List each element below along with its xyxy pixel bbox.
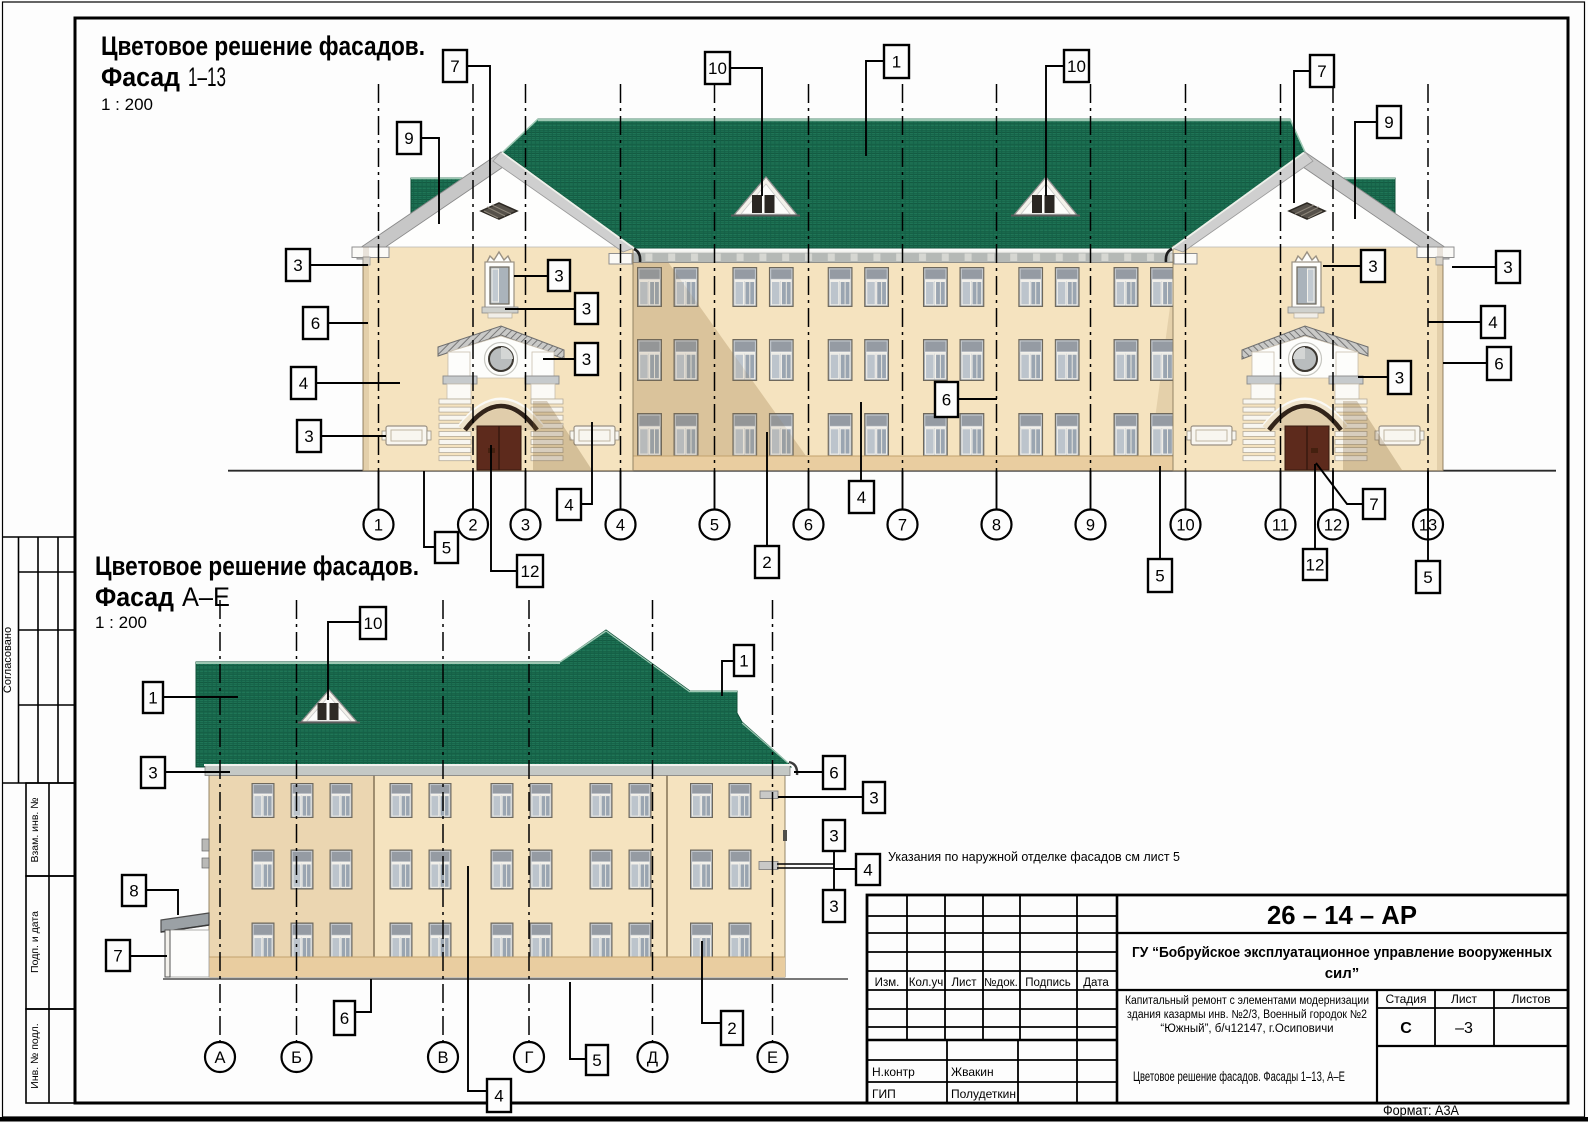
svg-text:5: 5 (442, 539, 451, 558)
svg-text:12: 12 (1324, 517, 1342, 535)
svg-text:3: 3 (554, 267, 563, 286)
svg-text:Д: Д (647, 1049, 658, 1067)
svg-text:Н.контр: Н.контр (872, 1065, 915, 1079)
svg-text:3: 3 (293, 256, 302, 275)
svg-text:3: 3 (304, 427, 313, 446)
svg-text:Капитальный ремонт с элементам: Капитальный ремонт с элементами модерниз… (1125, 995, 1369, 1007)
svg-text:6: 6 (311, 314, 320, 333)
svg-text:–3: –3 (1455, 1020, 1473, 1037)
svg-text:5: 5 (1155, 567, 1164, 586)
svg-text:5: 5 (710, 517, 719, 535)
svg-text:7: 7 (898, 517, 907, 535)
svg-text:4: 4 (299, 374, 308, 393)
svg-text:Формат: А3А: Формат: А3А (1383, 1103, 1459, 1118)
svg-text:7: 7 (1369, 495, 1378, 514)
svg-text:“Южный”, б/ч12147, г.Осиповичи: “Южный”, б/ч12147, г.Осиповичи (1160, 1023, 1333, 1035)
svg-text:Фасад: Фасад (101, 62, 180, 92)
svg-text:10: 10 (708, 59, 727, 78)
svg-text:26 – 14 – АР: 26 – 14 – АР (1267, 900, 1417, 930)
svg-text:1 : 200: 1 : 200 (95, 613, 147, 632)
svg-text:4: 4 (564, 496, 573, 515)
svg-text:4: 4 (494, 1087, 503, 1106)
svg-text:8: 8 (129, 882, 138, 901)
svg-text:Лист: Лист (952, 977, 978, 989)
svg-text:3: 3 (1395, 369, 1404, 388)
svg-text:Полудеткин: Полудеткин (951, 1087, 1016, 1101)
svg-text:Стадия: Стадия (1386, 992, 1427, 1006)
svg-text:Согласовано: Согласовано (2, 627, 14, 693)
svg-text:10: 10 (1176, 517, 1194, 535)
svg-text:Фасад: Фасад (95, 582, 174, 612)
svg-text:Е: Е (767, 1049, 778, 1067)
svg-text:1: 1 (892, 53, 901, 72)
svg-text:10: 10 (364, 614, 383, 633)
svg-text:С: С (1400, 1020, 1412, 1037)
svg-text:Б: Б (291, 1049, 302, 1067)
svg-text:6: 6 (1494, 355, 1503, 374)
svg-text:Цветовое решение фасадов. Фаса: Цветовое решение фасадов. Фасады 1–13, А… (1133, 1069, 1345, 1084)
svg-text:7: 7 (450, 57, 459, 76)
svg-text:4: 4 (1488, 313, 1497, 332)
svg-text:5: 5 (1423, 568, 1432, 587)
svg-text:4: 4 (616, 517, 625, 535)
svg-text:Дата: Дата (1083, 977, 1109, 989)
svg-text:7: 7 (1317, 62, 1326, 81)
svg-text:Инв. № подл.: Инв. № подл. (29, 1023, 41, 1088)
svg-text:ГИП: ГИП (872, 1087, 896, 1101)
svg-text:9: 9 (404, 129, 413, 148)
svg-text:2: 2 (762, 553, 771, 572)
svg-text:Листов: Листов (1512, 992, 1551, 1006)
svg-text:Указания по наружной отделке ф: Указания по наружной отделке фасадов см … (888, 849, 1180, 864)
svg-text:8: 8 (992, 517, 1001, 535)
svg-text:12: 12 (1306, 556, 1325, 575)
svg-text:А: А (214, 1049, 225, 1067)
svg-text:здания казармы инв. №2/3, Воен: здания казармы инв. №2/3, Военный городо… (1127, 1009, 1367, 1021)
svg-text:3: 3 (1503, 258, 1512, 277)
svg-text:Цветовое решение фасадов.: Цветовое решение фасадов. (95, 551, 419, 581)
svg-text:Кол.уч: Кол.уч (909, 977, 944, 989)
svg-text:3: 3 (148, 764, 157, 783)
svg-text:10: 10 (1067, 57, 1086, 76)
svg-text:1–13: 1–13 (188, 62, 226, 92)
svg-text:Взам. инв. №: Взам. инв. № (29, 797, 41, 862)
svg-text:Г: Г (525, 1049, 534, 1067)
svg-text:1: 1 (739, 652, 748, 671)
svg-text:3: 3 (521, 517, 530, 535)
svg-text:7: 7 (113, 947, 122, 966)
svg-text:12: 12 (521, 562, 540, 581)
svg-text:Цветовое решение фасадов.: Цветовое решение фасадов. (101, 31, 425, 61)
svg-text:2: 2 (468, 517, 477, 535)
svg-text:6: 6 (942, 391, 951, 410)
svg-text:3: 3 (582, 300, 591, 319)
svg-text:4: 4 (863, 861, 872, 880)
svg-text:6: 6 (340, 1009, 349, 1028)
svg-text:3: 3 (829, 897, 838, 916)
svg-text:3: 3 (869, 789, 878, 808)
svg-text:9: 9 (1384, 113, 1393, 132)
svg-text:4: 4 (857, 488, 866, 507)
svg-text:5: 5 (592, 1051, 601, 1070)
svg-text:1: 1 (374, 517, 383, 535)
svg-text:Жвакин: Жвакин (951, 1065, 994, 1079)
svg-text:3: 3 (829, 827, 838, 846)
svg-text:9: 9 (1086, 517, 1095, 535)
svg-text:А–Е: А–Е (182, 582, 230, 612)
svg-text:Изм.: Изм. (875, 977, 900, 989)
svg-text:6: 6 (829, 764, 838, 783)
svg-text:В: В (437, 1049, 448, 1067)
svg-text:Подпись: Подпись (1025, 977, 1071, 989)
svg-text:3: 3 (1368, 257, 1377, 276)
svg-text:Подп. и дата: Подп. и дата (29, 911, 41, 973)
svg-text:11: 11 (1272, 517, 1289, 535)
svg-text:6: 6 (804, 517, 813, 535)
svg-text:1: 1 (148, 689, 157, 708)
svg-text:1 : 200: 1 : 200 (101, 95, 153, 114)
svg-text:Лист: Лист (1451, 992, 1478, 1006)
svg-text:ГУ “Бобруйское эксплуатационно: ГУ “Бобруйское эксплуатационное управлен… (1132, 944, 1553, 961)
svg-text:сил”: сил” (1325, 965, 1360, 982)
svg-text:3: 3 (582, 350, 591, 369)
svg-text:№док.: №док. (984, 977, 1018, 989)
svg-text:2: 2 (727, 1019, 736, 1038)
